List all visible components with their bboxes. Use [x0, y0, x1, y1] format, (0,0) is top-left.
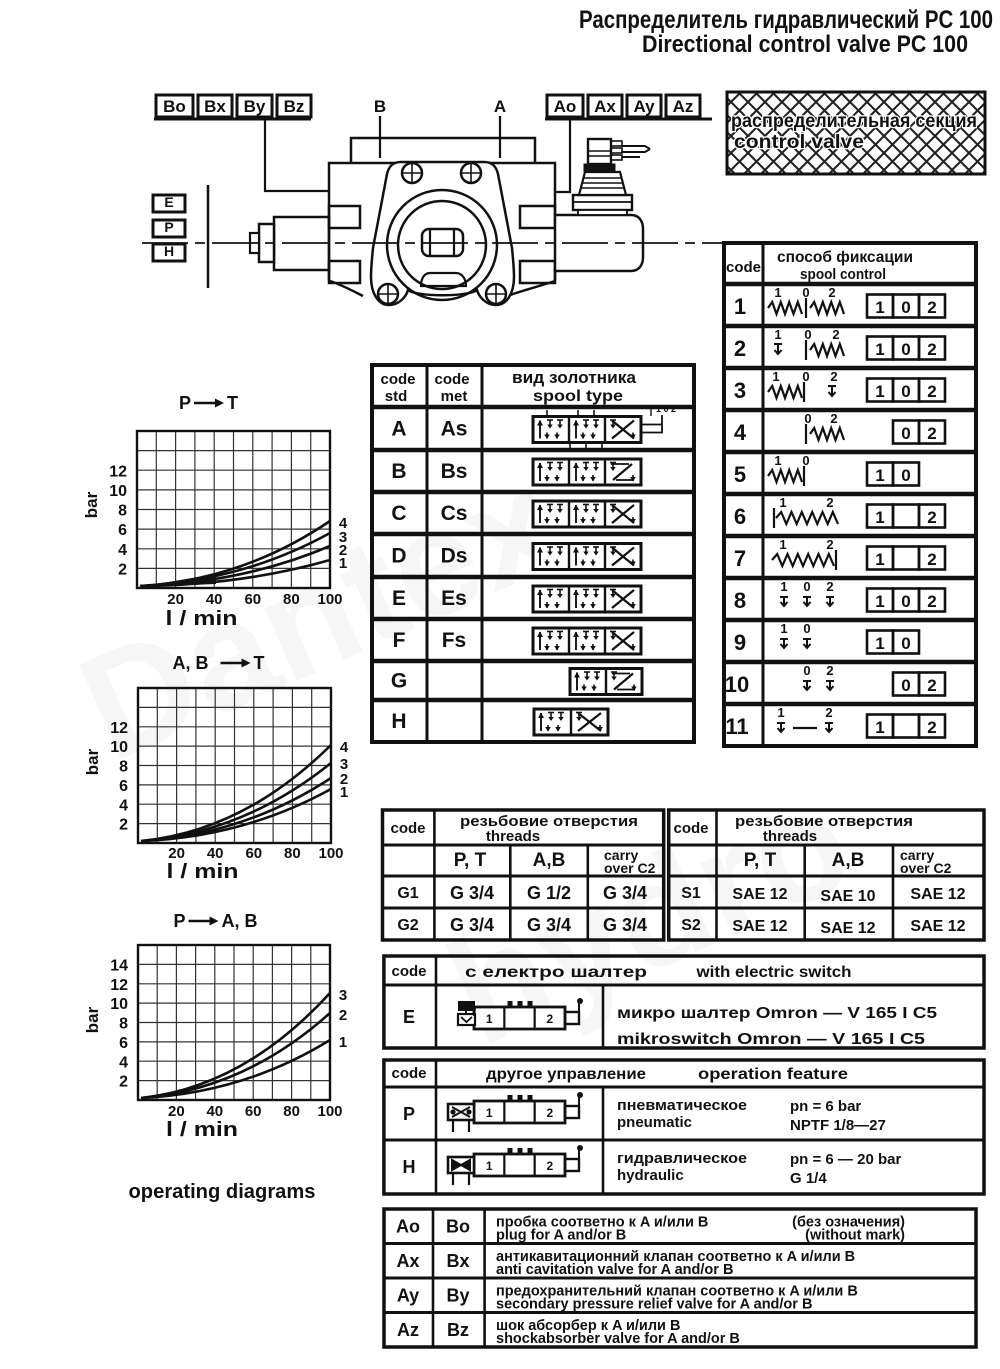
svg-text:code: code	[434, 371, 469, 388]
svg-text:A: A	[391, 418, 406, 441]
svg-text:6: 6	[119, 1035, 128, 1052]
svg-text:code: code	[390, 820, 425, 837]
svg-text:0: 0	[901, 298, 910, 317]
svg-text:spool control: spool control	[800, 266, 886, 283]
svg-text:1: 1	[875, 298, 884, 317]
svg-text:NPTF 1/8—27: NPTF 1/8—27	[790, 1117, 886, 1134]
svg-text:10: 10	[109, 483, 127, 500]
svg-text:SAE 10: SAE 10	[820, 888, 875, 905]
svg-text:P: P	[164, 219, 173, 235]
svg-text:40: 40	[206, 591, 223, 608]
svg-text:operation feature: operation feature	[698, 1066, 848, 1083]
svg-text:G 1/2: G 1/2	[527, 883, 571, 903]
svg-text:over C2: over C2	[604, 860, 656, 876]
svg-text:100: 100	[317, 591, 342, 608]
svg-text:0: 0	[803, 621, 810, 636]
svg-text:(without mark): (without mark)	[805, 1228, 905, 1244]
svg-text:A, B: A, B	[173, 653, 209, 673]
svg-text:E: E	[392, 587, 406, 610]
svg-text:6: 6	[118, 522, 127, 539]
svg-text:0: 0	[803, 579, 810, 594]
svg-text:SAE 12: SAE 12	[732, 886, 787, 903]
svg-text:1: 1	[486, 1159, 493, 1173]
svg-text:code: code	[673, 820, 708, 837]
svg-text:1: 1	[486, 1106, 493, 1120]
svg-text:code: code	[391, 963, 426, 980]
svg-text:P: P	[174, 911, 186, 931]
svg-text:14: 14	[110, 957, 128, 974]
svg-text:Ao: Ao	[396, 1216, 420, 1236]
svg-text:P, T: P, T	[454, 850, 487, 871]
svg-text:G2: G2	[397, 917, 418, 934]
svg-text:G 3/4: G 3/4	[450, 883, 494, 903]
svg-text:1: 1	[875, 382, 884, 401]
svg-text:1: 1	[875, 592, 884, 611]
svg-text:2: 2	[927, 298, 936, 317]
svg-text:Cs: Cs	[441, 502, 468, 525]
svg-text:2: 2	[927, 592, 936, 611]
svg-text:l / min: l / min	[166, 608, 238, 630]
svg-text:1: 1	[875, 508, 884, 527]
svg-text:8: 8	[119, 759, 128, 776]
svg-text:By: By	[244, 97, 266, 116]
svg-text:Ay: Ay	[397, 1285, 419, 1305]
svg-text:микро шалтер Omron — V 165: микро шалтер Omron — V 165 I C5	[617, 1005, 937, 1022]
svg-text:Bs: Bs	[441, 460, 468, 483]
svg-text:2: 2	[826, 537, 833, 552]
svg-text:2: 2	[546, 1012, 553, 1026]
svg-text:0: 0	[802, 369, 809, 384]
svg-text:bar: bar	[83, 1006, 102, 1033]
svg-text:B: B	[374, 97, 386, 116]
svg-text:1: 1	[780, 621, 787, 636]
svg-text:80: 80	[284, 845, 301, 862]
svg-text:H: H	[164, 243, 174, 259]
svg-text:G 3/4: G 3/4	[603, 915, 647, 935]
svg-text:threads: threads	[486, 828, 540, 845]
svg-text:1 0 2: 1 0 2	[656, 404, 676, 414]
svg-text:H: H	[391, 710, 406, 733]
svg-text:6: 6	[119, 778, 128, 795]
svg-text:способ фиксации: способ фиксации	[777, 249, 913, 266]
svg-text:8: 8	[734, 588, 746, 613]
svg-text:1: 1	[875, 550, 884, 569]
svg-text:Распределитель гидравлический: Распределитель гидравлический PC 100	[579, 6, 993, 34]
svg-text:code: code	[726, 259, 761, 276]
svg-text:H: H	[403, 1157, 416, 1177]
svg-text:40: 40	[207, 845, 224, 862]
svg-text:C: C	[391, 502, 406, 525]
svg-text:control valve: control valve	[734, 132, 864, 153]
svg-text:S2: S2	[681, 917, 701, 934]
svg-text:4: 4	[118, 542, 127, 559]
svg-text:Bz: Bz	[284, 97, 305, 116]
svg-text:0: 0	[803, 663, 810, 678]
svg-text:l / min: l / min	[166, 1119, 238, 1141]
svg-text:2: 2	[927, 676, 936, 695]
svg-text:1: 1	[774, 285, 781, 300]
svg-text:Ay: Ay	[633, 97, 655, 116]
svg-text:другое управление: другое управление	[486, 1066, 646, 1083]
svg-text:6: 6	[734, 504, 746, 529]
svg-text:0: 0	[901, 382, 910, 401]
svg-text:Ax: Ax	[594, 97, 616, 116]
svg-text:2: 2	[927, 340, 936, 359]
svg-text:0: 0	[802, 285, 809, 300]
svg-text:2: 2	[830, 411, 837, 426]
svg-text:pn = 6 bar: pn = 6 bar	[790, 1098, 861, 1115]
svg-text:T: T	[254, 653, 265, 673]
svg-text:1: 1	[774, 453, 781, 468]
svg-text:hydraulic: hydraulic	[617, 1167, 684, 1184]
svg-text:bar: bar	[83, 748, 102, 775]
svg-text:plug for A and/or B: plug for A and/or B	[496, 1228, 626, 1244]
svg-text:12: 12	[109, 463, 127, 480]
svg-text:shockabsorber valve for A and/: shockabsorber valve for A and/or B	[496, 1331, 740, 1347]
svg-text:0: 0	[802, 453, 809, 468]
svg-text:T: T	[227, 393, 238, 413]
svg-text:20: 20	[168, 845, 185, 862]
svg-text:60: 60	[245, 1103, 262, 1120]
svg-text:G: G	[391, 670, 407, 693]
svg-text:E: E	[164, 194, 173, 210]
svg-text:40: 40	[206, 1103, 223, 1120]
svg-text:code: code	[380, 371, 415, 388]
svg-text:A,B: A,B	[533, 850, 566, 871]
svg-text:Az: Az	[397, 1320, 419, 1340]
svg-text:P: P	[179, 393, 191, 413]
svg-text:0: 0	[901, 424, 910, 443]
svg-text:1: 1	[774, 327, 781, 342]
svg-text:anti cavitation valve for A an: anti cavitation valve for A and/or B	[496, 1262, 733, 1278]
svg-text:3: 3	[734, 378, 746, 403]
svg-text:8: 8	[119, 1016, 128, 1033]
svg-text:B: B	[391, 460, 406, 483]
svg-text:1: 1	[772, 369, 779, 384]
svg-text:G 3/4: G 3/4	[450, 915, 494, 935]
svg-text:Az: Az	[673, 97, 694, 116]
svg-text:гидравлическое: гидравлическое	[617, 1150, 747, 1167]
svg-text:0: 0	[901, 340, 910, 359]
svg-text:4: 4	[119, 1054, 128, 1071]
svg-text:SAE 12: SAE 12	[910, 886, 965, 903]
svg-text:P, T: P, T	[744, 850, 777, 871]
svg-text:2: 2	[118, 561, 127, 578]
svg-text:mikroswitch Omron — V 165 I: mikroswitch Omron — V 165 I C5	[617, 1031, 925, 1048]
svg-text:Ax: Ax	[396, 1251, 419, 1271]
svg-text:threads: threads	[763, 828, 817, 845]
svg-text:secondary pressure relief valv: secondary pressure relief valve for A an…	[496, 1297, 812, 1313]
svg-text:A: A	[494, 97, 506, 116]
svg-text:2: 2	[119, 817, 128, 834]
svg-text:0: 0	[901, 676, 910, 695]
svg-text:2: 2	[826, 579, 833, 594]
svg-text:code: code	[391, 1065, 426, 1082]
svg-text:pneumatic: pneumatic	[617, 1114, 692, 1131]
svg-text:1: 1	[486, 1012, 493, 1026]
svg-text:2: 2	[927, 508, 936, 527]
svg-text:10: 10	[110, 996, 128, 1013]
svg-text:2: 2	[832, 327, 839, 342]
svg-text:9: 9	[734, 630, 746, 655]
svg-text:l / min: l / min	[167, 861, 239, 883]
svg-text:4: 4	[734, 420, 747, 445]
svg-text:1: 1	[779, 495, 786, 510]
svg-text:распределительная секция: распределительная секция	[731, 111, 977, 132]
svg-text:Bx: Bx	[446, 1251, 469, 1271]
svg-text:met: met	[441, 388, 468, 405]
svg-text:2: 2	[546, 1106, 553, 1120]
svg-text:D: D	[391, 545, 406, 568]
svg-text:Fs: Fs	[442, 629, 467, 652]
svg-text:S1: S1	[681, 885, 701, 902]
svg-text:As: As	[441, 418, 468, 441]
svg-text:E: E	[403, 1007, 415, 1027]
svg-text:10: 10	[110, 739, 128, 756]
svg-text:2: 2	[927, 718, 936, 737]
svg-text:1: 1	[875, 466, 884, 485]
svg-text:пневматическое: пневматическое	[617, 1097, 747, 1114]
svg-text:spool type: spool type	[533, 388, 623, 405]
svg-text:G1: G1	[397, 885, 418, 902]
svg-text:2: 2	[339, 1007, 347, 1024]
svg-text:20: 20	[168, 1103, 185, 1120]
svg-text:80: 80	[283, 1103, 300, 1120]
svg-text:0: 0	[804, 327, 811, 342]
svg-text:with electric switch: with electric switch	[695, 964, 851, 981]
svg-text:8: 8	[118, 503, 127, 520]
svg-text:1: 1	[875, 718, 884, 737]
svg-text:2: 2	[826, 663, 833, 678]
svg-text:Bo: Bo	[163, 97, 186, 116]
svg-text:12: 12	[110, 977, 128, 994]
svg-text:2: 2	[927, 550, 936, 569]
svg-text:2: 2	[734, 336, 746, 361]
svg-text:1: 1	[777, 705, 784, 720]
svg-text:2: 2	[927, 382, 936, 401]
svg-text:P: P	[403, 1104, 415, 1124]
svg-text:вид золотника: вид золотника	[512, 368, 637, 387]
svg-text:1: 1	[779, 537, 786, 552]
svg-text:1: 1	[875, 340, 884, 359]
svg-text:0: 0	[901, 466, 910, 485]
svg-text:1: 1	[340, 784, 348, 801]
svg-text:0: 0	[901, 592, 910, 611]
svg-text:A,B: A,B	[832, 850, 865, 871]
svg-text:A, B: A, B	[222, 911, 258, 931]
svg-text:By: By	[446, 1285, 469, 1305]
svg-text:7: 7	[734, 546, 746, 571]
svg-text:G 3/4: G 3/4	[527, 915, 571, 935]
svg-text:100: 100	[318, 845, 343, 862]
svg-text:Bx: Bx	[204, 97, 226, 116]
svg-text:80: 80	[283, 591, 300, 608]
svg-text:4: 4	[340, 739, 349, 756]
svg-text:11: 11	[725, 714, 748, 739]
svg-text:bar: bar	[82, 491, 101, 518]
svg-text:5: 5	[734, 462, 746, 487]
svg-text:G 1/4: G 1/4	[790, 1170, 827, 1187]
svg-text:1: 1	[875, 634, 884, 653]
svg-text:10: 10	[725, 672, 749, 697]
svg-text:pn = 6 — 20 bar: pn = 6 — 20 bar	[790, 1151, 901, 1168]
svg-text:Bz: Bz	[447, 1320, 469, 1340]
svg-text:100: 100	[317, 1103, 342, 1120]
svg-text:SAE 12: SAE 12	[732, 918, 787, 935]
svg-text:с електро шалтер: с електро шалтер	[465, 964, 647, 981]
svg-text:2: 2	[828, 285, 835, 300]
svg-text:60: 60	[245, 845, 262, 862]
svg-text:operating diagrams: operating diagrams	[129, 1181, 316, 1203]
svg-text:3: 3	[339, 987, 347, 1004]
svg-text:std: std	[385, 388, 408, 405]
svg-text:2: 2	[119, 1074, 128, 1091]
svg-text:Es: Es	[441, 587, 467, 610]
svg-text:0: 0	[901, 634, 910, 653]
svg-text:2: 2	[546, 1159, 553, 1173]
svg-text:G 3/4: G 3/4	[603, 883, 647, 903]
svg-text:SAE 12: SAE 12	[910, 918, 965, 935]
svg-text:резьбовие отверстия: резьбовие отверстия	[735, 813, 913, 830]
svg-text:2: 2	[825, 705, 832, 720]
svg-text:1: 1	[339, 1034, 347, 1051]
svg-text:12: 12	[110, 720, 128, 737]
svg-text:1: 1	[734, 294, 746, 319]
svg-text:1: 1	[780, 579, 787, 594]
svg-text:SAE 12: SAE 12	[820, 920, 875, 937]
svg-text:Bo: Bo	[446, 1216, 470, 1236]
svg-text:Directional control valve PC 1: Directional control valve PC 100	[642, 31, 968, 58]
svg-text:F: F	[393, 629, 406, 652]
svg-text:Ds: Ds	[441, 545, 468, 568]
svg-text:0: 0	[804, 411, 811, 426]
svg-text:over C2: over C2	[900, 860, 952, 876]
svg-text:1: 1	[339, 555, 347, 572]
svg-text:20: 20	[167, 591, 184, 608]
svg-text:Ao: Ao	[554, 97, 577, 116]
svg-text:2: 2	[927, 424, 936, 443]
svg-text:2: 2	[830, 369, 837, 384]
svg-text:4: 4	[119, 797, 128, 814]
svg-text:2: 2	[826, 495, 833, 510]
svg-text:60: 60	[244, 591, 261, 608]
